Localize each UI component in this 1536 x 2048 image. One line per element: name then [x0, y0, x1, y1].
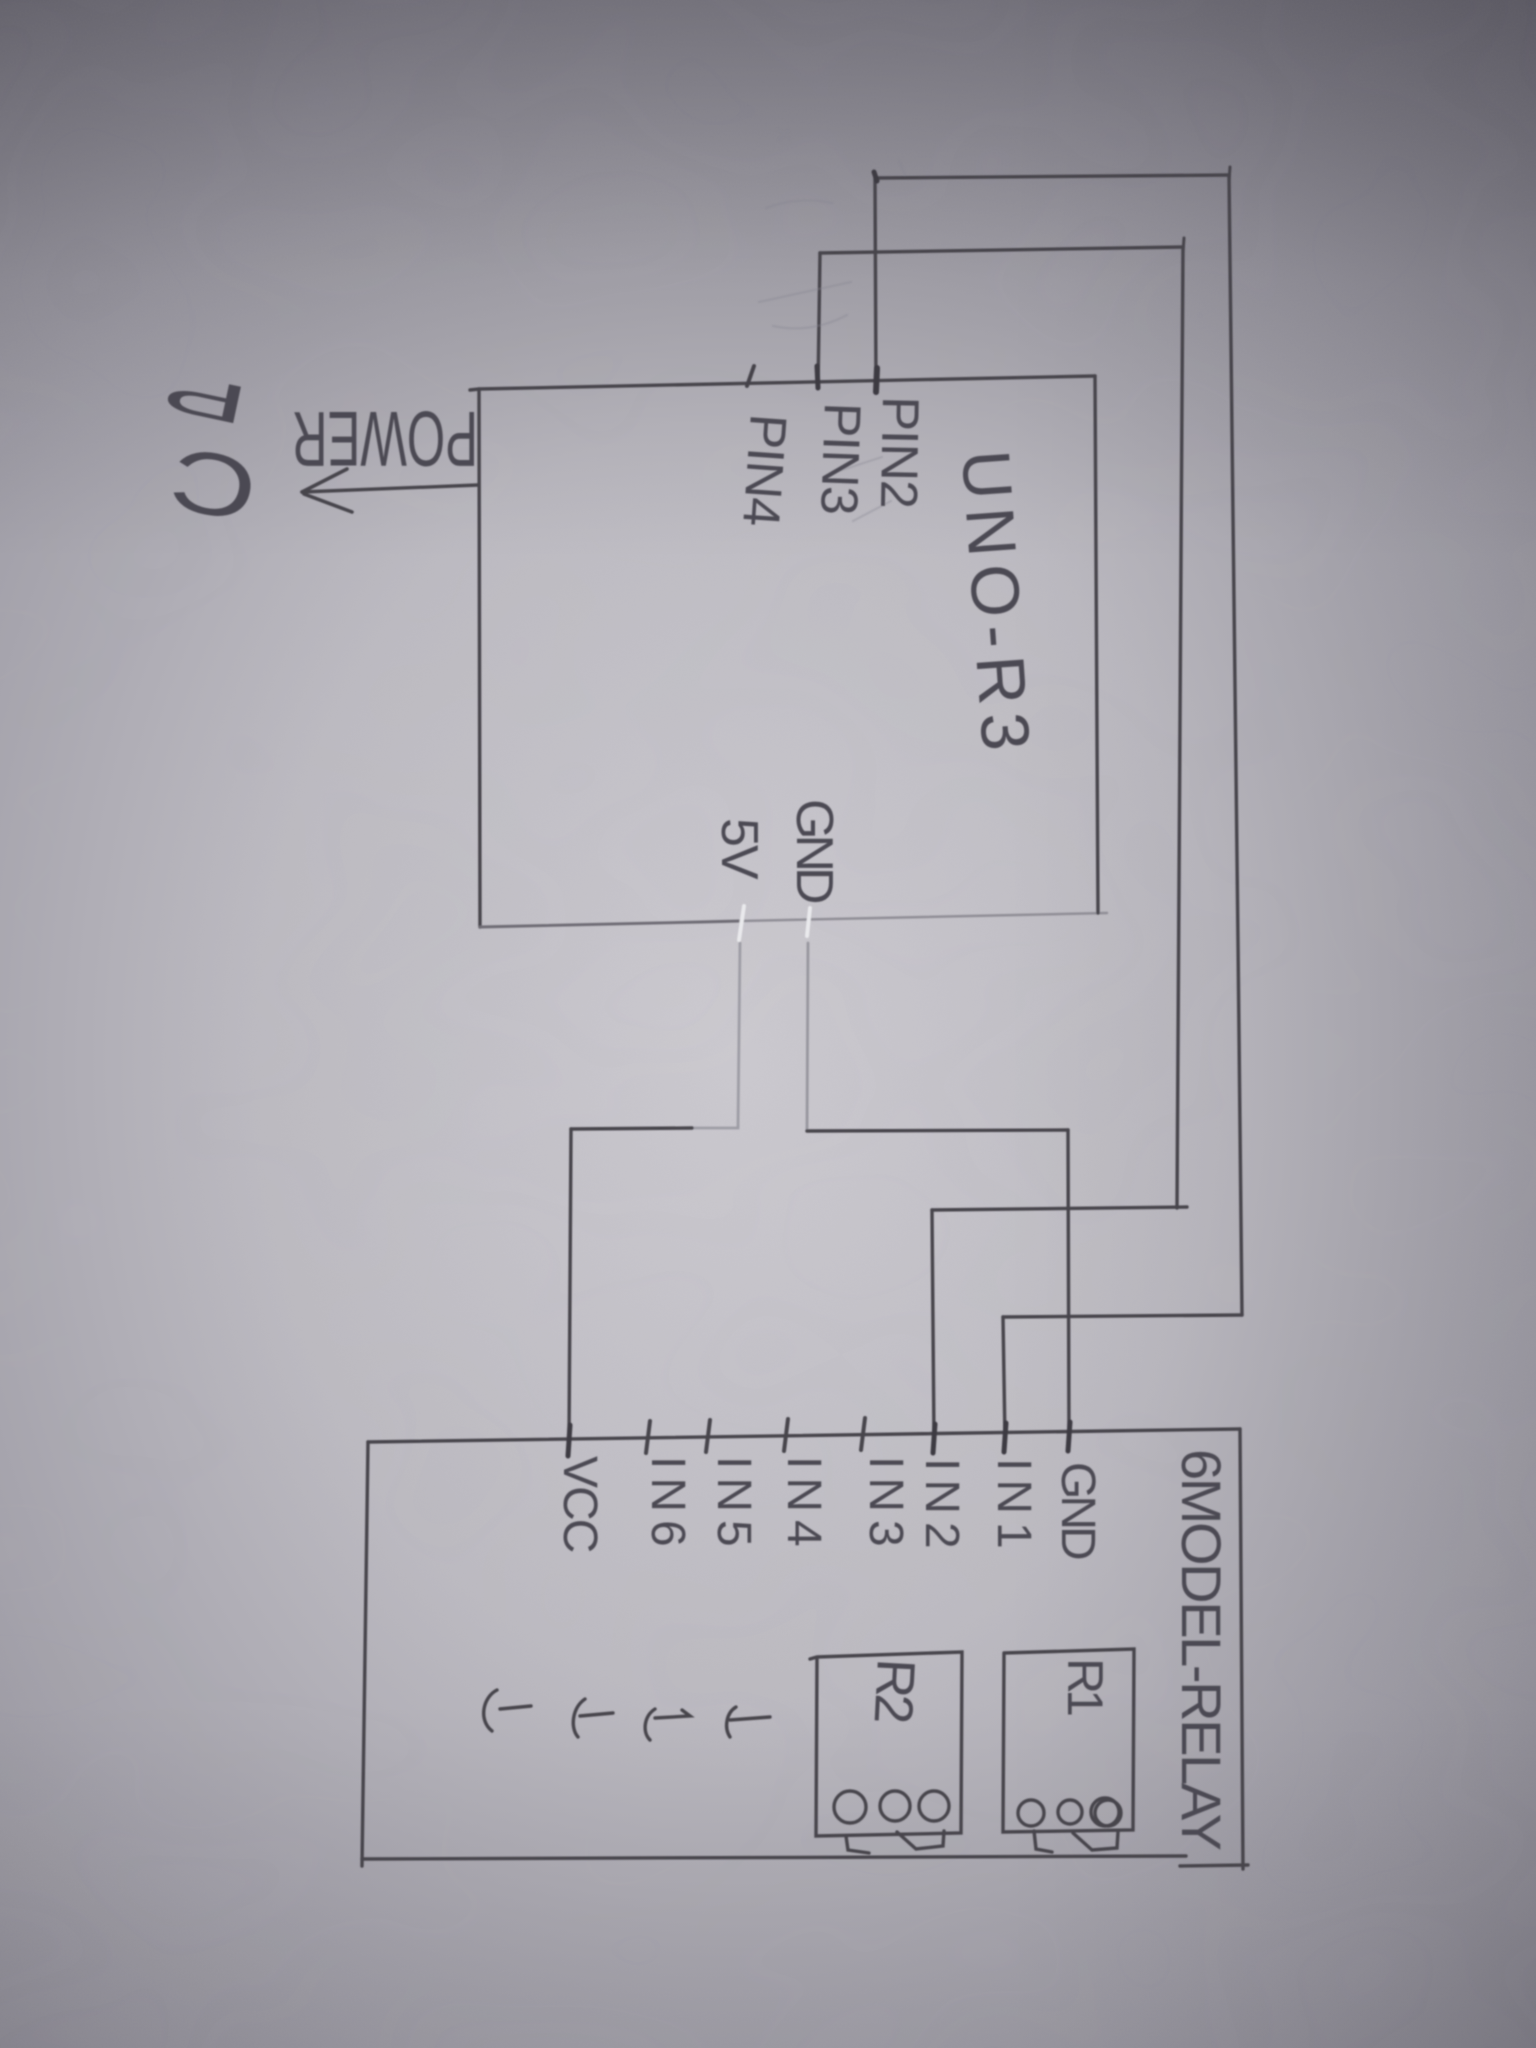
svg-text:PIN4: PIN4	[731, 412, 797, 527]
svg-text:5V: 5V	[710, 818, 768, 880]
svg-text:IN4: IN4	[777, 1456, 830, 1555]
svg-text:GND: GND	[785, 799, 843, 903]
svg-text:PIN3: PIN3	[809, 402, 871, 516]
svg-text:IN3: IN3	[859, 1456, 912, 1555]
svg-text:IN6: IN6	[641, 1456, 694, 1555]
svg-text:IN1: IN1	[987, 1458, 1040, 1557]
svg-text:R2: R2	[863, 1657, 926, 1723]
svg-text:GND: GND	[1051, 1462, 1104, 1559]
svg-text:IN2: IN2	[915, 1458, 968, 1557]
svg-text:VCC: VCC	[553, 1456, 606, 1552]
svg-text:R1: R1	[1057, 1658, 1113, 1715]
svg-text:PIN2: PIN2	[869, 396, 929, 509]
svg-text:POWER: POWER	[292, 395, 478, 483]
svg-text:6MODEL-RELAY: 6MODEL-RELAY	[1170, 1449, 1233, 1851]
svg-text:IN5: IN5	[707, 1456, 760, 1555]
